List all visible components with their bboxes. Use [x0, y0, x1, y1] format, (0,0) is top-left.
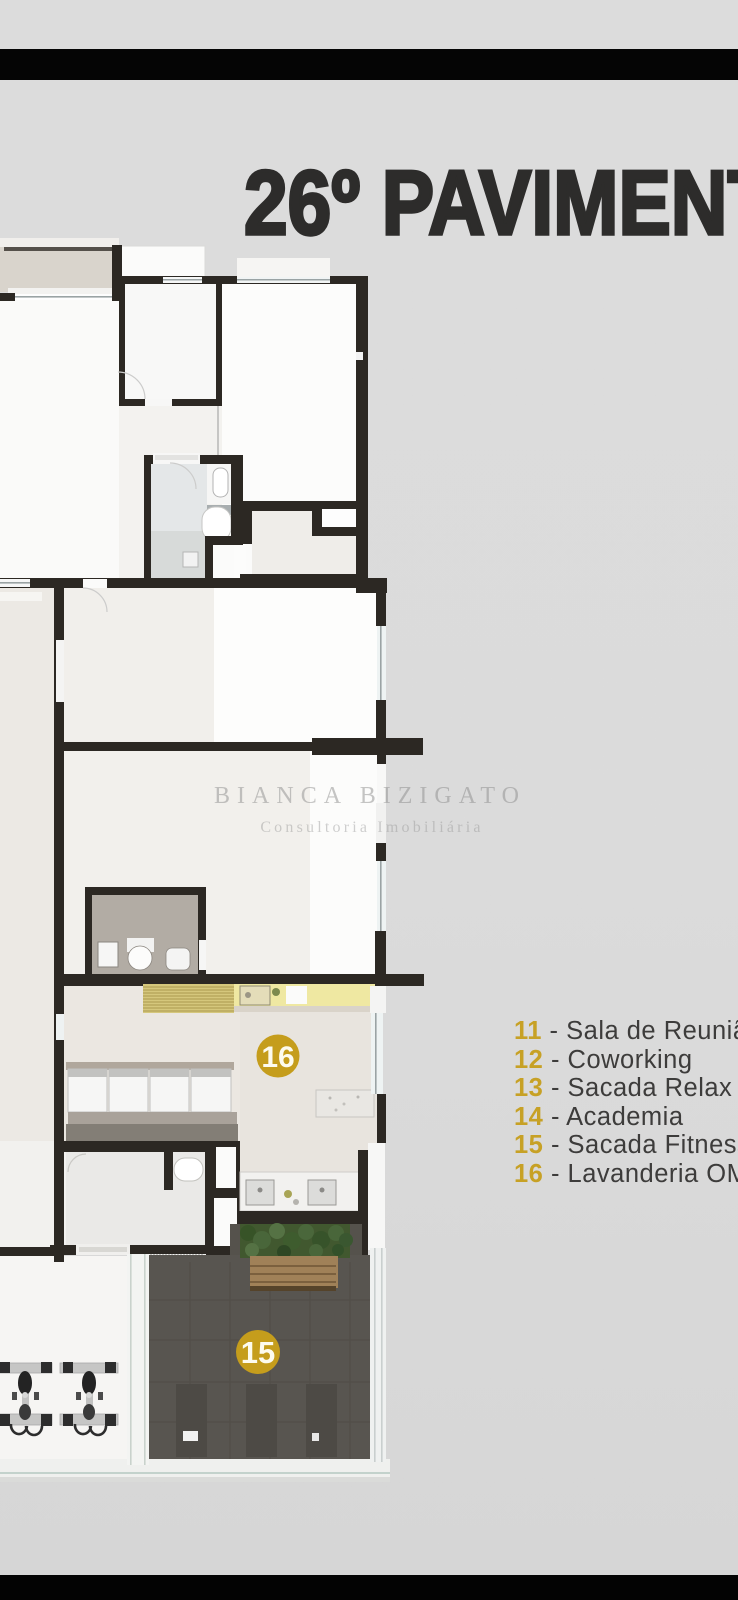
- svg-text:16: 16: [261, 1041, 294, 1074]
- svg-text:15: 15: [241, 1335, 275, 1370]
